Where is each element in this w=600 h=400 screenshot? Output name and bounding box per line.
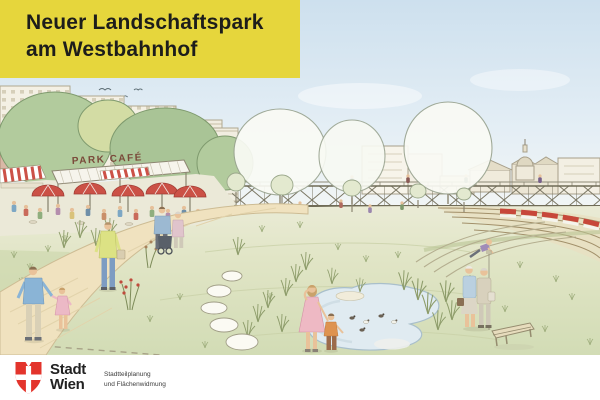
logo-line-2: Wien [50, 378, 86, 392]
stadt-wien-shield-icon [14, 361, 43, 395]
stadt-wien-logotype: Stadt Wien [50, 363, 86, 392]
market-stall [0, 165, 46, 188]
poster: PARK CAFÉ [0, 0, 600, 400]
department-line-2: und Flächenwidmung [104, 380, 166, 389]
footer: Stadt Wien Stadtteilplanung und Flächenw… [0, 355, 600, 400]
title-line-2: am Westbahnhof [26, 36, 300, 63]
department-line-1: Stadtteilplanung [104, 370, 166, 379]
title-line-1: Neuer Landschaftspark [26, 9, 300, 36]
title-banner: Neuer Landschaftspark am Westbahnhof [0, 0, 300, 78]
department-label: Stadtteilplanung und Flächenwidmung [104, 370, 166, 388]
